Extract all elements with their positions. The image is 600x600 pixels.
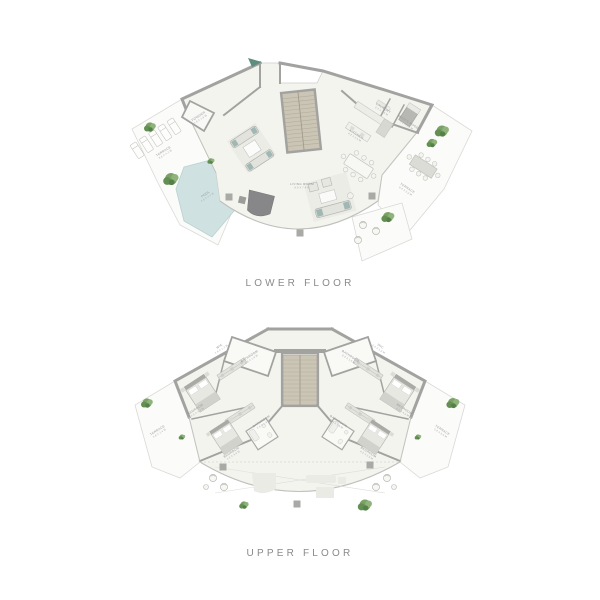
planter: [369, 193, 376, 200]
planter: [297, 230, 304, 237]
planter: [294, 501, 301, 508]
planter: [367, 462, 374, 469]
lower-floor-title: LOWER FLOOR: [0, 278, 600, 289]
floorplan-page: TERRACE 8.6 X 4.2 M POWDER 1.9 X 1.6 M P…: [0, 0, 600, 600]
tree: [239, 501, 248, 508]
svg-text:8.9 X 7.4 M: 8.9 X 7.4 M: [295, 186, 310, 189]
upper-floor-plan: BATHROOM 2.9 X 1.8 M BATHROOM 2.9 X 1.8 …: [120, 315, 480, 540]
terrace-chairs-left: [204, 474, 228, 490]
svg-text:LIVING ROOM: LIVING ROOM: [290, 182, 314, 186]
planter: [220, 464, 227, 471]
upper-floor-title: UPPER FLOOR: [0, 548, 600, 559]
staircase: [281, 89, 321, 152]
tree: [358, 499, 372, 510]
planter: [226, 194, 233, 201]
lower-floor-plan: TERRACE 8.6 X 4.2 M POWDER 1.9 X 1.6 M P…: [120, 55, 480, 270]
terrace-chairs-right: [372, 474, 396, 490]
staircase: [276, 351, 324, 406]
